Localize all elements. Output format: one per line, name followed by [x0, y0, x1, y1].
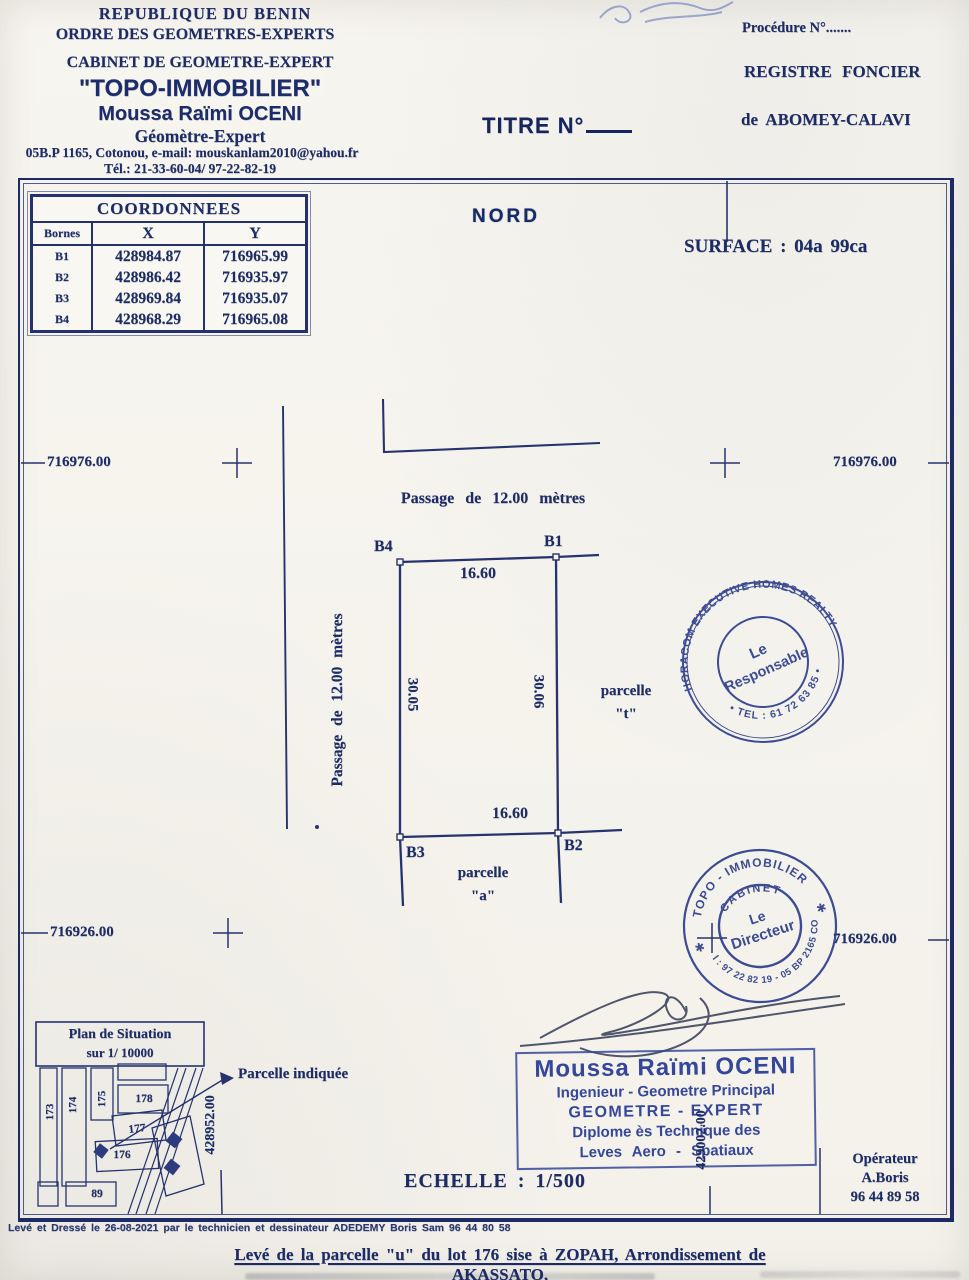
north-label: NORD	[472, 206, 540, 228]
survey-document-page: REPUBLIQUE DU BENIN ORDRE DES GEOMETRES-…	[0, 0, 969, 1280]
coordinates-table-title: COORDONNEES	[33, 197, 305, 223]
lot-label-176: 176	[106, 1149, 138, 1161]
coordinates-table-header: Bornes X Y	[33, 223, 305, 246]
parcelle-a-word: parcelle	[428, 862, 538, 885]
borne-label-b4: B4	[374, 538, 393, 556]
star-glyph: ✱	[815, 900, 829, 916]
situation-title-line1: Plan de Situation	[36, 1026, 204, 1044]
grid-label-y-top-left: 716976.00	[47, 454, 111, 471]
coordinates-table: COORDONNEES Bornes X Y B1 428984.87 7169…	[30, 194, 308, 333]
expert-stamp-name: Moussa Raïmi OCENI	[517, 1052, 813, 1084]
dimension-right: 30.06	[530, 657, 547, 727]
passage-horizontal-label: Passage de 12.00 mètres	[388, 490, 598, 508]
borne-label-b2: B2	[564, 837, 583, 855]
passage-vertical-label: Passage de 12.00 mètres	[329, 600, 347, 800]
lot-label-178: 178	[128, 1093, 160, 1105]
lot-174-shape	[62, 1068, 86, 1186]
borne-x: 428984.87	[91, 246, 203, 267]
parcelle-t-word: parcelle	[586, 680, 666, 703]
borne-y: 716965.08	[203, 309, 305, 330]
borne-y: 716965.99	[203, 246, 305, 267]
parcelle-t-label: parcelle "t"	[586, 680, 666, 726]
col-header-y: Y	[203, 223, 305, 244]
star-glyph: ✱	[693, 939, 707, 955]
grid-label-y-bottom-right: 716926.00	[833, 931, 897, 948]
col-header-x: X	[91, 223, 203, 244]
expert-stamp-box: Moussa Raïmi OCENI Ingenieur - Geometre …	[515, 1048, 817, 1170]
operator-phone: 96 44 89 58	[826, 1188, 944, 1207]
table-row: B1 428984.87 716965.99	[33, 246, 305, 267]
borne-x: 428986.42	[91, 267, 203, 288]
lot-label-89: 89	[81, 1188, 113, 1200]
borne-x: 428969.84	[91, 288, 203, 309]
handwritten-mark	[600, 2, 733, 22]
horacom-stamp: HORACOM EXECUTIVE HOMES REALTY • TEL : 6…	[678, 577, 848, 747]
footer-title: Levé de la parcelle "u" du lot 176 sise …	[200, 1245, 800, 1280]
borne-id: B1	[33, 246, 91, 267]
borne-label-b3: B3	[406, 844, 425, 862]
lot-label-174: 174	[67, 1088, 79, 1122]
passage-boundary-left	[283, 406, 287, 829]
col-header-bornes: Bornes	[33, 223, 91, 244]
parcelle-indiquee-callout: Parcelle indiquée	[238, 1066, 348, 1083]
scale-label: ECHELLE : 1/500	[404, 1170, 586, 1193]
stamp-center-line1: Le	[747, 640, 770, 663]
operator-name: A.Boris	[826, 1169, 944, 1188]
topo-immobilier-stamp: TOPO - IMMOBILIER CABINET Tel : 97 22 82…	[680, 846, 840, 1006]
operator-label: Opérateur	[826, 1150, 944, 1169]
parcelle-a-id: "a"	[428, 885, 538, 908]
table-row: B2 428986.42 716935.97	[33, 267, 305, 288]
table-row: B4 428968.29 716965.08	[33, 309, 305, 330]
parcel-boundary	[400, 555, 622, 906]
dimension-bottom: 16.60	[450, 805, 570, 823]
borne-label-b1: B1	[544, 533, 563, 551]
stamp-center-line1: Le	[747, 907, 768, 927]
grid-label-x-west: 428952.00	[203, 1085, 219, 1165]
situation-title-line2: sur 1/ 10000	[36, 1044, 204, 1062]
borne-y: 716935.07	[203, 288, 305, 309]
borne-id: B3	[33, 288, 91, 309]
boundary-dot	[315, 825, 319, 829]
parcelle-t-id: "t"	[586, 703, 666, 726]
borne-y: 716935.97	[203, 267, 305, 288]
lot-label-175: 175	[96, 1082, 108, 1116]
passage-boundary-top	[383, 399, 600, 452]
parcelle-a-label: parcelle "a"	[428, 862, 538, 908]
callout-arrowhead	[220, 1072, 234, 1085]
surface-label: SURFACE : 04a 99ca	[684, 236, 867, 258]
grid-label-x-east: 429002.00	[694, 1100, 710, 1180]
borne-x: 428968.29	[91, 309, 203, 330]
lot-label-173: 173	[44, 1095, 56, 1129]
dimension-top: 16.60	[418, 565, 538, 583]
grid-label-y-top-right: 716976.00	[833, 454, 897, 471]
grid-label-y-bottom-left: 716926.00	[50, 924, 114, 941]
building-zone-shape	[152, 1116, 204, 1196]
expert-stamp-title1: Ingenieur - Geometre Principal	[518, 1080, 814, 1104]
borne-id: B2	[33, 267, 91, 288]
footer-note: Levé et Dressé le 26-08-2021 par le tech…	[8, 1222, 708, 1234]
situation-title: Plan de Situation sur 1/ 10000	[36, 1026, 204, 1062]
dimension-left: 30.05	[404, 660, 421, 730]
operator-block: Opérateur A.Boris 96 44 89 58	[826, 1150, 944, 1207]
borne-id: B4	[33, 309, 91, 330]
expert-stamp-title4: Leves Aero - Spatiaux	[518, 1140, 814, 1164]
table-row: B3 428969.84 716935.07	[33, 288, 305, 309]
